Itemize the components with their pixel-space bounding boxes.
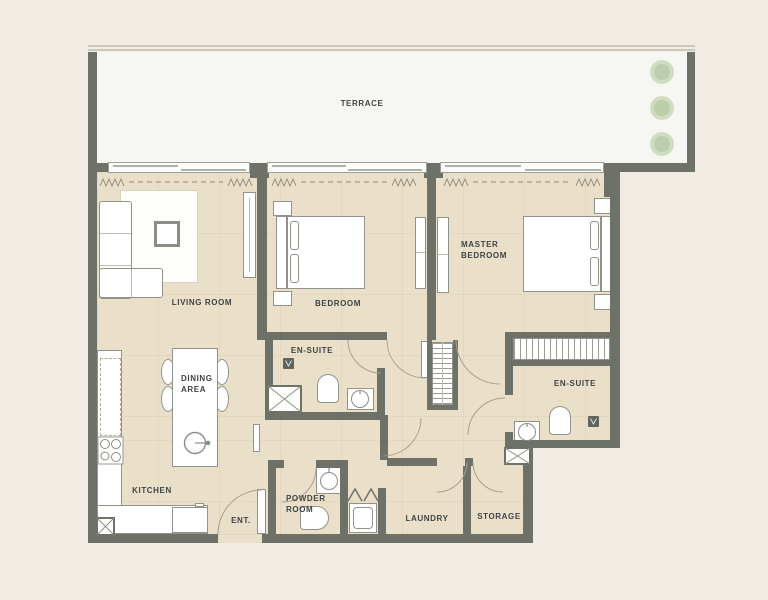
plan-symbols: [0, 0, 768, 600]
shaft-x-icon: [505, 448, 530, 464]
tree-icon: [650, 132, 674, 156]
door-arc: [218, 340, 505, 534]
bifold-door-icon: [348, 489, 378, 501]
room-label-powder-room: POWDER ROOM: [286, 494, 346, 515]
shaft-x-icon: [268, 386, 301, 412]
room-label-dining-area: DINING AREA: [181, 374, 225, 395]
room-label-storage: STORAGE: [477, 512, 521, 523]
room-label-terrace: TERRACE: [341, 99, 384, 110]
tree-icon: [650, 60, 674, 84]
shaft-x-icon: [97, 518, 114, 535]
room-label-bedroom: BEDROOM: [315, 299, 361, 310]
tree-icon: [650, 96, 674, 120]
room-label-living-room: LIVING ROOM: [172, 298, 232, 309]
room-label-entrance: ENT.: [231, 516, 251, 527]
stove-icon: [98, 437, 123, 464]
room-label-laundry: LAUNDRY: [405, 514, 448, 525]
room-label-ensuite-2: EN-SUITE: [554, 379, 596, 390]
floor-plan: TERRACE LIVING ROOM BEDROOM MASTER BEDRO…: [0, 0, 768, 600]
room-label-ensuite-1: EN-SUITE: [291, 346, 333, 357]
drain-icon: [283, 358, 599, 427]
curtain-icon: [100, 179, 600, 186]
room-label-master-bedroom: MASTER BEDROOM: [461, 240, 525, 261]
room-label-kitchen: KITCHEN: [132, 486, 172, 497]
